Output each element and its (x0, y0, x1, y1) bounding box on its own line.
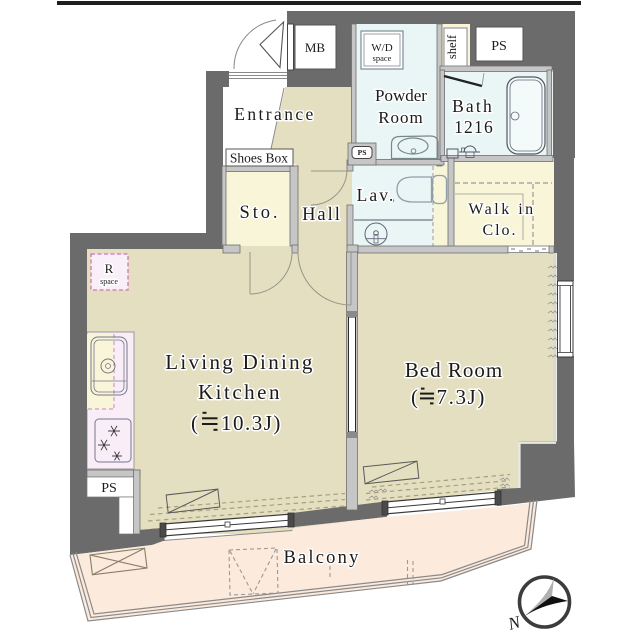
svg-text:R: R (105, 261, 114, 276)
svg-text:Clo.: Clo. (482, 222, 517, 239)
svg-text:10.3J): 10.3J) (221, 411, 282, 435)
svg-text:Bath: Bath (452, 96, 494, 116)
svg-text:Walk in: Walk in (468, 201, 535, 218)
svg-text:1216: 1216 (454, 117, 494, 137)
svg-text:Bed Room: Bed Room (405, 358, 503, 382)
svg-text:MB: MB (305, 40, 326, 55)
svg-text:shelf: shelf (445, 34, 459, 59)
svg-text:(: ( (191, 411, 198, 435)
svg-text:7.3J): 7.3J) (437, 385, 486, 409)
svg-text:Lav.: Lav. (357, 185, 396, 205)
svg-text:(: ( (411, 385, 418, 409)
svg-text:Entrance: Entrance (234, 104, 315, 124)
svg-text:Kitchen: Kitchen (198, 380, 282, 404)
svg-text:PS: PS (358, 148, 367, 157)
svg-text:PS: PS (491, 39, 507, 54)
svg-text:space: space (100, 277, 118, 286)
svg-text:space: space (373, 53, 392, 63)
svg-text:Living Dining: Living Dining (165, 350, 314, 374)
svg-text:Balcony: Balcony (283, 548, 360, 568)
svg-text:Shoes Box: Shoes Box (230, 151, 288, 166)
svg-text:Hall: Hall (302, 205, 342, 225)
svg-text:PS: PS (101, 481, 117, 496)
svg-text:Room: Room (378, 108, 424, 127)
svg-text:Sto.: Sto. (240, 203, 281, 223)
svg-text:Powder: Powder (375, 86, 427, 105)
